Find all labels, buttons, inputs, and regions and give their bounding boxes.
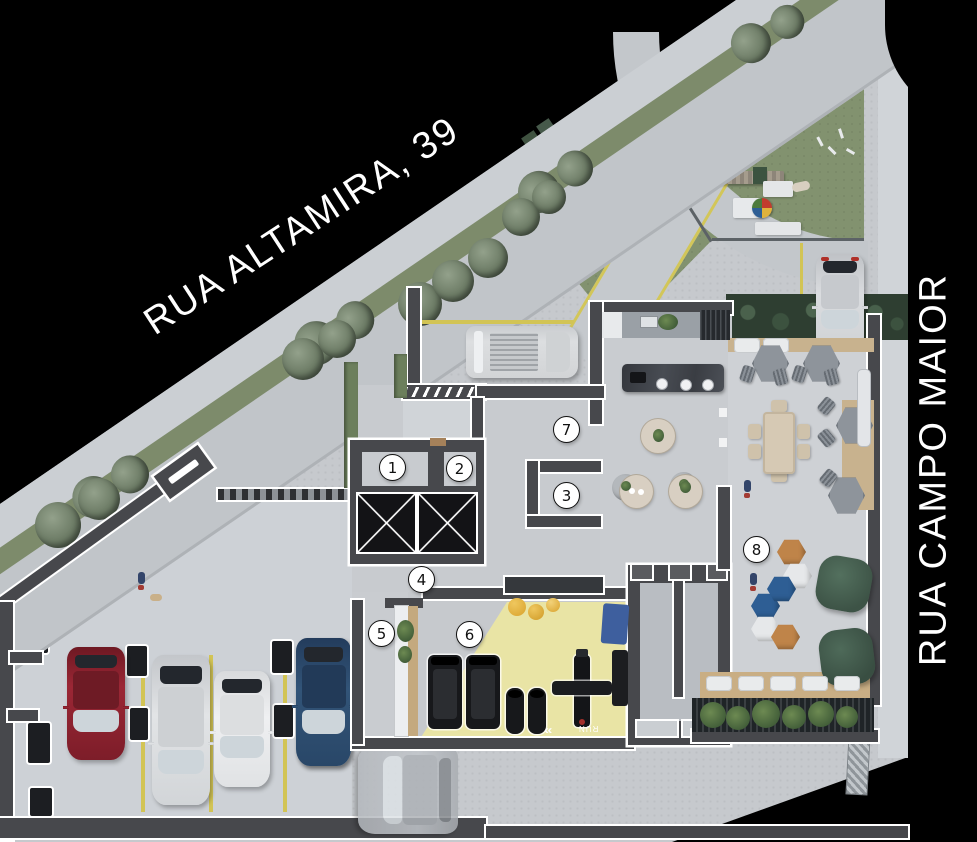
exercise-bike [506, 688, 524, 734]
planter-shrub [808, 701, 834, 727]
deck-cushion [734, 338, 760, 353]
tree [532, 180, 566, 214]
entrance-wall [403, 385, 485, 399]
room3-top-wall [527, 461, 601, 472]
right-sidewalk [878, 50, 908, 758]
parking-line [800, 243, 803, 300]
elevator-2-cell [419, 494, 476, 552]
dog-figure [150, 594, 162, 601]
dining-chair [797, 444, 810, 459]
bench-cushion [834, 676, 860, 691]
room3-bottom-wall [527, 516, 601, 527]
charging-post [127, 646, 147, 676]
garage-pillar [28, 723, 50, 763]
dining-chair [771, 400, 787, 412]
glass-wall-mark [719, 438, 727, 447]
tree [318, 320, 356, 358]
glass-wall-mark [719, 408, 727, 417]
bar-stool [657, 379, 667, 389]
garage-wall-stub [10, 652, 42, 663]
tree [468, 238, 508, 278]
dining-table [763, 412, 795, 474]
tree [282, 338, 324, 380]
picnic-table [755, 222, 801, 235]
person-figure [750, 573, 757, 591]
planter-shrub [782, 705, 806, 729]
curb [486, 826, 908, 838]
bench-cushion [706, 676, 732, 691]
area-marker-2: 2 [446, 455, 473, 482]
delivery-van [466, 326, 578, 378]
gym-ball [508, 598, 526, 616]
bar-stool [703, 380, 713, 390]
tree [35, 502, 81, 548]
person-figure [744, 480, 751, 498]
floor-chevron: « [544, 724, 552, 738]
bay-left-wall [408, 288, 420, 388]
dumbbell-rack [612, 650, 628, 706]
car-red [67, 647, 125, 760]
table-plant [653, 429, 664, 442]
party-room-left-wall [590, 302, 602, 424]
planter-shrub [726, 706, 750, 730]
garage-wall-stub [8, 710, 38, 721]
gym-bottom-wall [352, 738, 634, 749]
car-blue-body [296, 638, 351, 766]
person-figure [138, 572, 145, 590]
terrace-bench [858, 370, 870, 446]
multi-gym-machine [552, 655, 612, 727]
bar-stool [681, 380, 691, 390]
garage-pillar [30, 788, 52, 816]
garage-left-wall [0, 602, 13, 840]
bench-cushion [738, 676, 764, 691]
umbrella-pinwheel [752, 198, 772, 218]
area-marker-1: 1 [379, 454, 406, 481]
treadmill [466, 655, 500, 729]
charging-post [274, 705, 293, 737]
gym-ball [546, 598, 560, 612]
bay-stripe [418, 320, 574, 324]
planter-shrub [700, 702, 726, 728]
table-plates [629, 488, 635, 494]
gym-floor-print: RUN [578, 724, 598, 733]
dining-chair [748, 444, 761, 459]
floorplan-scene: « RUN [0, 0, 977, 842]
charging-post [130, 708, 148, 740]
garage-top-wall [218, 489, 352, 500]
dining-chair [748, 424, 761, 439]
corridor-plant [397, 620, 414, 642]
table-plant [680, 481, 691, 493]
elevator-1-cell [358, 494, 415, 552]
lawn-edge [712, 238, 864, 241]
tree [432, 260, 474, 302]
corridor-plant [398, 646, 412, 663]
green-wall [394, 354, 407, 398]
charging-post [272, 641, 292, 673]
car-silver-minivan [152, 655, 210, 805]
street-campo-maior-label: RUA CAMPO MAIOR [913, 235, 956, 705]
planter-shrub [836, 706, 858, 728]
bench-cushion [802, 676, 828, 691]
exercise-mat [601, 603, 630, 645]
hall-top-wall [477, 386, 604, 398]
vestibule-right-wall [472, 398, 483, 446]
area-marker-8: 8 [743, 536, 770, 563]
car-white [214, 671, 270, 787]
car-ghost [358, 746, 458, 834]
lounge-left-wall [718, 487, 730, 569]
area-marker-4: 4 [408, 566, 435, 593]
area-marker-7: 7 [553, 416, 580, 443]
round-table [620, 475, 653, 508]
planter-shrub [752, 700, 780, 728]
treadmill [428, 655, 462, 729]
vestibule-door [430, 438, 446, 446]
area-marker-6: 6 [456, 621, 483, 648]
hall-sideboard [505, 577, 603, 593]
corridor-left-wall [352, 600, 363, 744]
area-marker-3: 3 [553, 482, 580, 509]
gym-ball [528, 604, 544, 620]
picnic-table [763, 181, 793, 197]
bench-cushion [770, 676, 796, 691]
dining-chair [797, 424, 810, 439]
area-marker-5: 5 [368, 620, 395, 647]
gate-fence [846, 736, 869, 795]
kitchen-counter [602, 312, 730, 338]
